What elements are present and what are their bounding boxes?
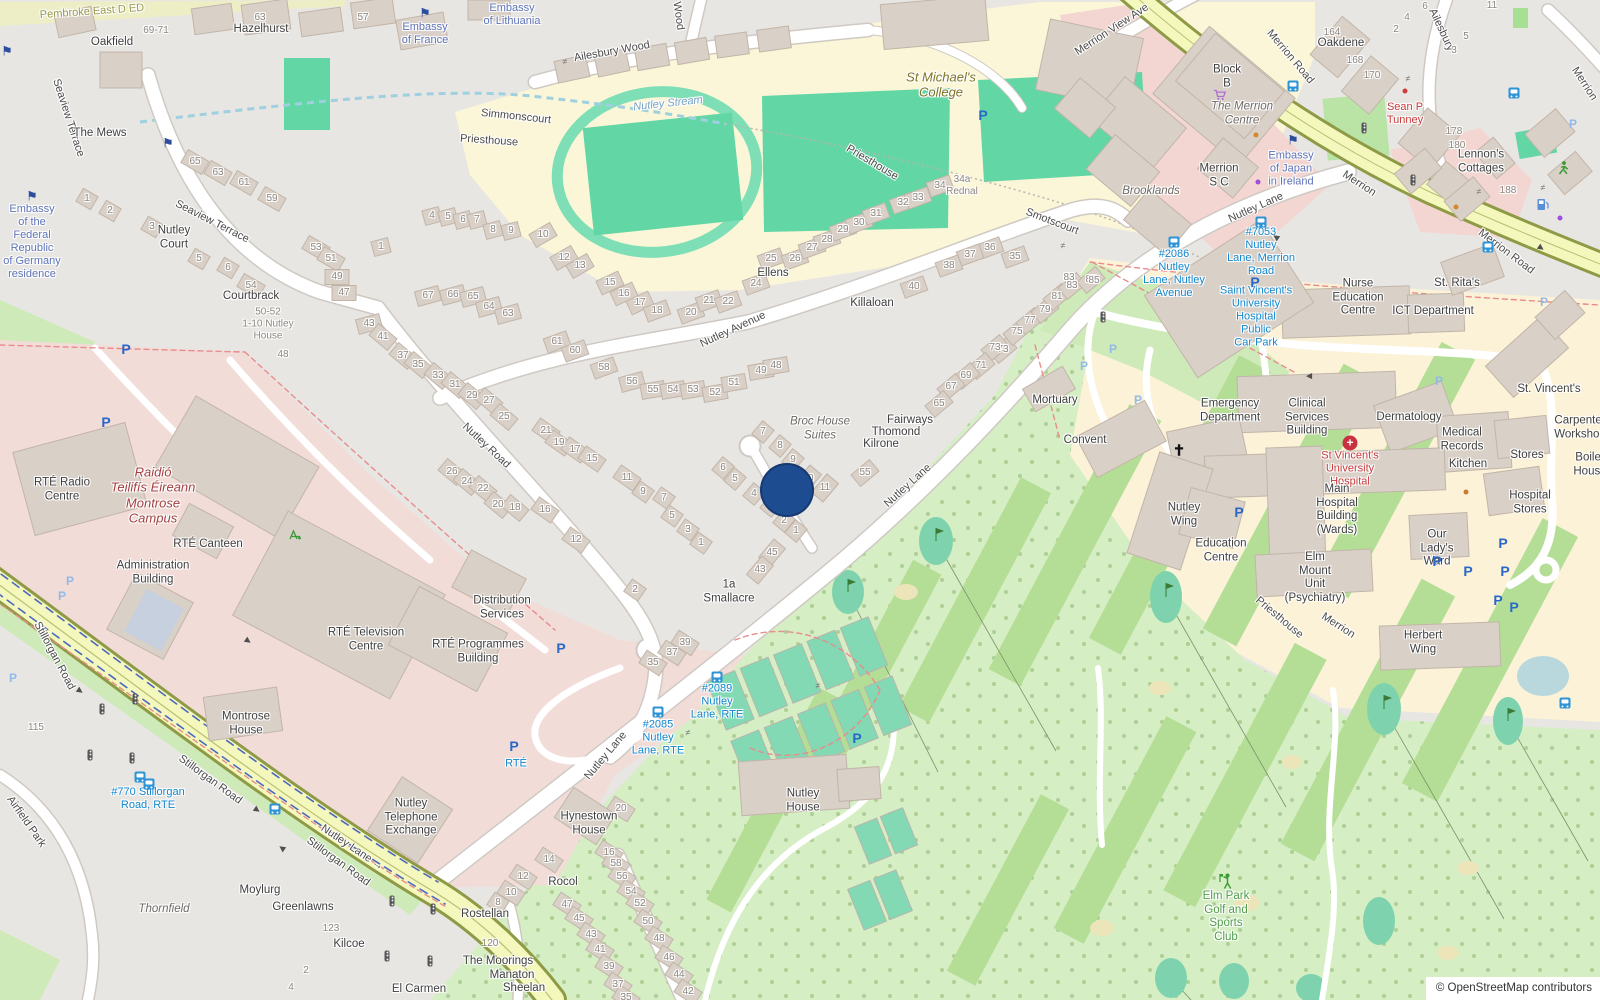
building [1237, 371, 1397, 432]
building [1407, 293, 1464, 333]
building [468, 0, 510, 20]
house [332, 286, 356, 301]
map-canvas[interactable]: Pembroke East D EDSeaview TerraceSeaview… [0, 0, 1600, 1000]
building [1204, 448, 1445, 498]
building [738, 754, 850, 815]
attribution[interactable]: © OpenStreetMap contributors [1426, 977, 1600, 1000]
building [191, 3, 234, 34]
building [1255, 549, 1373, 597]
pond [1517, 656, 1569, 696]
building [1409, 513, 1469, 560]
building [880, 0, 989, 49]
building [1266, 446, 1326, 568]
location-marker[interactable] [760, 463, 814, 517]
building [1494, 415, 1550, 458]
building [241, 0, 291, 35]
building [1379, 622, 1500, 670]
house [325, 270, 349, 285]
building [100, 52, 142, 88]
building [1483, 466, 1544, 515]
building [757, 26, 792, 52]
building [299, 7, 344, 37]
building [837, 767, 881, 802]
building [715, 32, 750, 58]
